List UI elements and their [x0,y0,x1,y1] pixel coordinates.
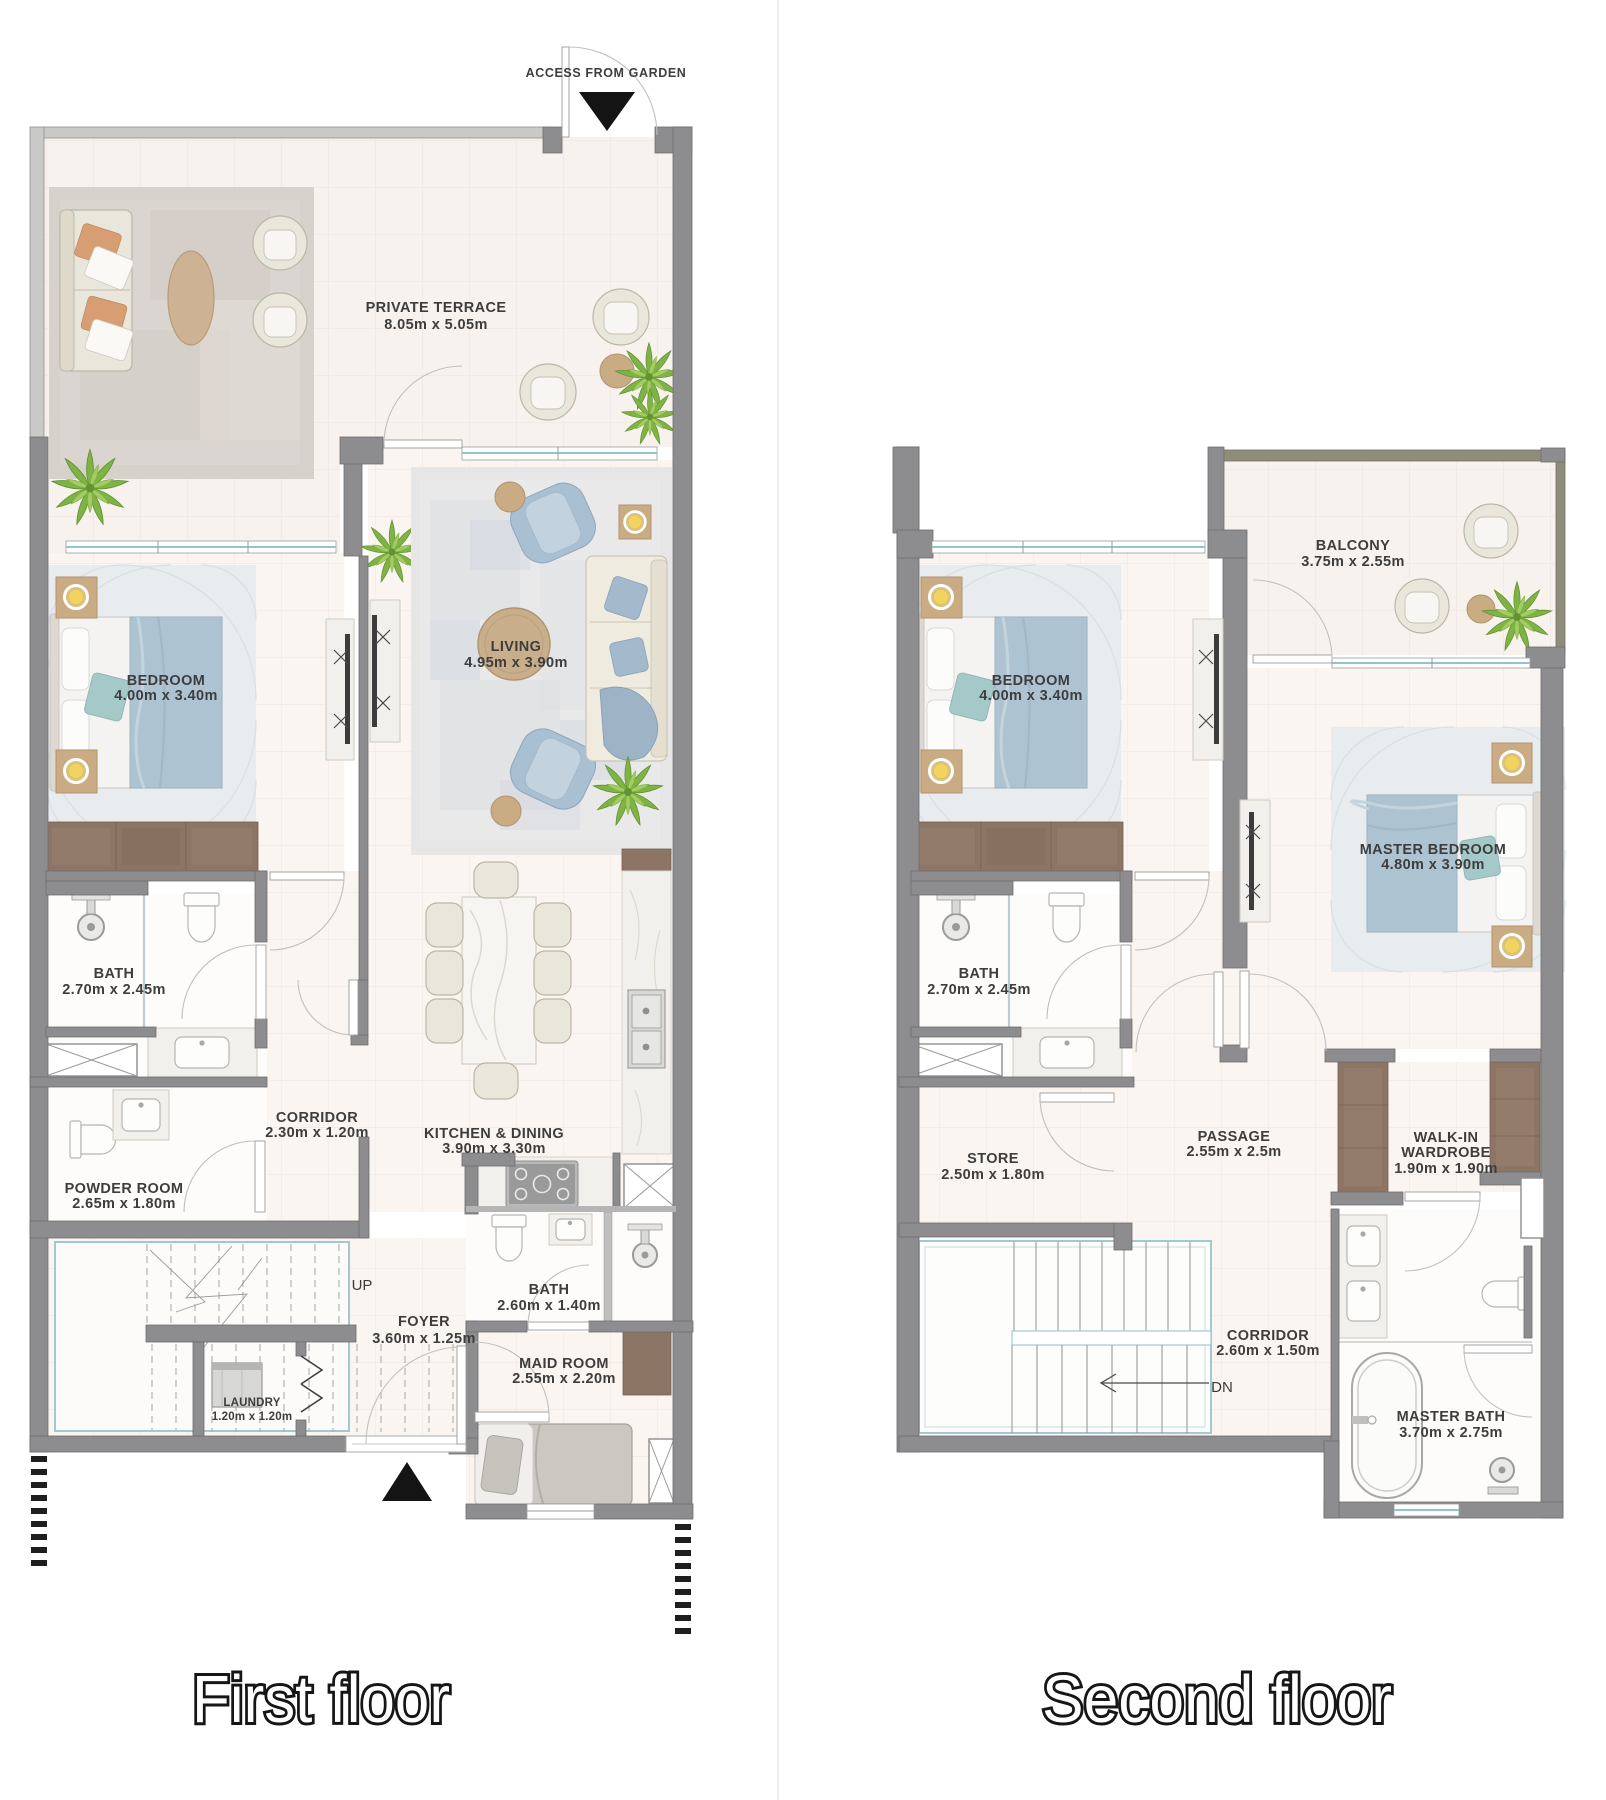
svg-text:4.00m x 3.40m: 4.00m x 3.40m [114,688,218,704]
svg-text:1.90m x 1.90m: 1.90m x 1.90m [1394,1161,1498,1177]
svg-text:ACCESS FROM GARDEN: ACCESS FROM GARDEN [526,66,687,80]
svg-text:PASSAGE: PASSAGE [1198,1129,1271,1145]
svg-text:BEDROOM: BEDROOM [992,673,1071,689]
svg-text:LAUNDRY: LAUNDRY [223,1397,280,1409]
svg-text:2.70m x 2.45m: 2.70m x 2.45m [62,982,166,998]
svg-text:2.55m x 2.20m: 2.55m x 2.20m [512,1371,616,1387]
svg-text:4.00m x 3.40m: 4.00m x 3.40m [979,688,1083,704]
svg-text:LIVING: LIVING [491,639,542,655]
svg-text:BEDROOM: BEDROOM [127,673,206,689]
svg-text:2.65m x 1.80m: 2.65m x 1.80m [72,1196,176,1212]
svg-text:MASTER BEDROOM: MASTER BEDROOM [1360,842,1507,858]
svg-text:FOYER: FOYER [398,1314,450,1330]
svg-text:MAID ROOM: MAID ROOM [519,1356,609,1372]
svg-text:WALK-IN: WALK-IN [1414,1130,1479,1146]
svg-text:POWDER ROOM: POWDER ROOM [65,1181,184,1197]
svg-text:2.70m x 2.45m: 2.70m x 2.45m [927,982,1031,998]
svg-text:3.75m x 2.55m: 3.75m x 2.55m [1301,554,1405,570]
svg-text:MASTER BATH: MASTER BATH [1397,1409,1506,1425]
svg-text:CORRIDOR: CORRIDOR [276,1110,358,1126]
svg-text:8.05m x 5.05m: 8.05m x 5.05m [384,317,488,333]
svg-text:1.20m x 1.20m: 1.20m x 1.20m [212,1411,293,1423]
svg-text:3.60m x 1.25m: 3.60m x 1.25m [372,1331,476,1347]
svg-text:KITCHEN & DINING: KITCHEN & DINING [424,1126,564,1142]
svg-text:3.70m x 2.75m: 3.70m x 2.75m [1399,1425,1503,1441]
svg-text:2.60m x 1.40m: 2.60m x 1.40m [497,1298,601,1314]
svg-text:4.95m x 3.90m: 4.95m x 3.90m [464,655,568,671]
svg-text:2.55m x 2.5m: 2.55m x 2.5m [1186,1144,1281,1160]
svg-text:3.90m x 3.30m: 3.90m x 3.30m [442,1141,546,1157]
svg-text:2.50m x 1.80m: 2.50m x 1.80m [941,1167,1045,1183]
svg-text:BATH: BATH [94,966,135,982]
svg-text:2.30m x 1.20m: 2.30m x 1.20m [265,1125,369,1141]
svg-text:4.80m x 3.90m: 4.80m x 3.90m [1381,857,1485,873]
svg-text:BATH: BATH [959,966,1000,982]
svg-text:2.60m x 1.50m: 2.60m x 1.50m [1216,1343,1320,1359]
svg-text:BATH: BATH [529,1282,570,1298]
svg-text:Second floor: Second floor [1042,1662,1392,1737]
svg-text:DN: DN [1211,1379,1233,1396]
svg-text:PRIVATE TERRACE: PRIVATE TERRACE [366,300,507,316]
svg-text:First floor: First floor [192,1662,450,1737]
svg-text:STORE: STORE [967,1151,1019,1167]
svg-text:UP: UP [352,1277,373,1294]
svg-text:CORRIDOR: CORRIDOR [1227,1328,1309,1344]
svg-text:WARDROBE: WARDROBE [1401,1145,1490,1161]
svg-text:BALCONY: BALCONY [1316,538,1391,554]
